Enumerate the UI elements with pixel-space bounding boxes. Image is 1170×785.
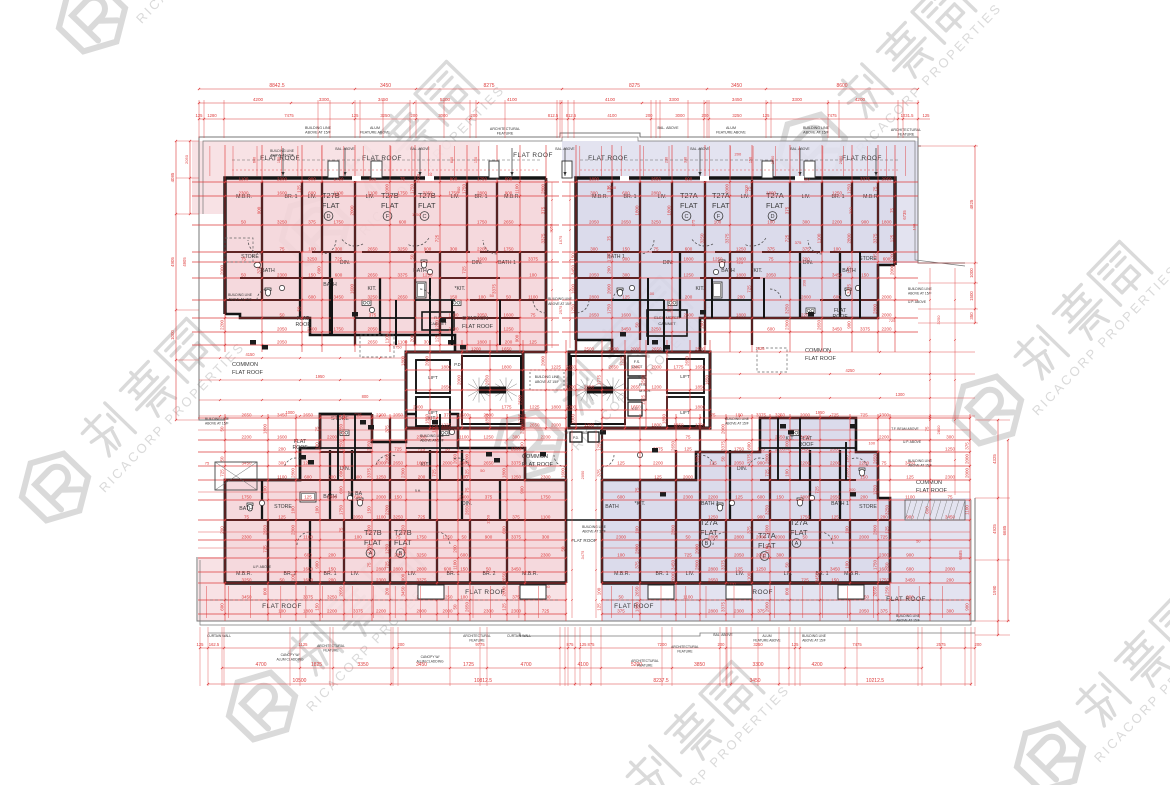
svg-text:F.S.: F.S. — [634, 360, 641, 364]
svg-text:2300: 2300 — [291, 524, 296, 535]
svg-text:125: 125 — [763, 113, 771, 118]
svg-text:900: 900 — [485, 534, 493, 539]
svg-text:75: 75 — [367, 562, 372, 568]
svg-text:375: 375 — [802, 246, 810, 251]
svg-text:ALUM: ALUM — [370, 126, 380, 130]
svg-text:5300: 5300 — [440, 97, 451, 102]
svg-text:3300: 3300 — [792, 97, 803, 102]
svg-text:1250: 1250 — [503, 326, 514, 331]
svg-text:2000: 2000 — [607, 283, 612, 294]
svg-text:C: C — [422, 214, 426, 220]
svg-text:LIV.: LIV. — [802, 194, 811, 200]
svg-text:725: 725 — [418, 514, 426, 519]
svg-text:BUILDING LINE: BUILDING LINE — [270, 149, 295, 153]
svg-text:50: 50 — [279, 577, 285, 582]
svg-text:600: 600 — [339, 486, 344, 494]
svg-text:300: 300 — [622, 272, 630, 277]
svg-text:1750: 1750 — [879, 577, 890, 582]
svg-text:1750: 1750 — [734, 446, 745, 451]
svg-text:1750: 1750 — [339, 504, 344, 515]
svg-text:BUILDING LINE: BUILDING LINE — [908, 459, 933, 463]
svg-text:100: 100 — [478, 294, 486, 299]
svg-text:875: 875 — [588, 642, 596, 647]
svg-text:1850: 1850 — [425, 413, 430, 424]
svg-text:BUILDING LINE: BUILDING LINE — [205, 417, 230, 421]
svg-text:1100: 1100 — [817, 233, 822, 243]
svg-text:2000: 2000 — [425, 355, 430, 366]
svg-text:2050: 2050 — [580, 470, 585, 479]
svg-text:2300: 2300 — [511, 608, 522, 613]
svg-text:75: 75 — [881, 460, 887, 465]
svg-text:600: 600 — [444, 566, 452, 571]
svg-text:50: 50 — [241, 219, 247, 224]
svg-text:FEATURE ABOVE: FEATURE ABOVE — [753, 638, 781, 642]
svg-text:4325: 4325 — [992, 454, 997, 464]
svg-text:1800: 1800 — [551, 404, 562, 409]
svg-text:3375: 3375 — [721, 559, 726, 570]
svg-text:300: 300 — [590, 246, 598, 251]
svg-text:2650: 2650 — [621, 219, 632, 224]
svg-text:1250: 1250 — [339, 440, 344, 451]
svg-text:600: 600 — [263, 587, 268, 595]
svg-text:100: 100 — [460, 594, 468, 599]
svg-text:2000: 2000 — [890, 264, 895, 275]
svg-text:2500: 2500 — [584, 346, 595, 351]
svg-text:8275: 8275 — [629, 83, 640, 89]
svg-text:BUILDING LINE: BUILDING LINE — [548, 297, 573, 301]
svg-text:600: 600 — [767, 326, 775, 331]
svg-text:1800: 1800 — [651, 422, 662, 427]
svg-text:75: 75 — [947, 494, 953, 499]
svg-text:1600: 1600 — [350, 283, 355, 294]
svg-text:2000: 2000 — [743, 184, 748, 194]
svg-text:125: 125 — [873, 253, 878, 261]
svg-text:2200: 2200 — [708, 494, 719, 499]
svg-text:725: 725 — [385, 561, 390, 569]
svg-text:3250: 3250 — [277, 219, 288, 224]
svg-text:ROOF: ROOF — [293, 445, 308, 451]
svg-text:3375: 3375 — [511, 534, 522, 539]
svg-text:2000: 2000 — [945, 566, 956, 571]
svg-text:KIT.: KIT. — [696, 286, 705, 292]
svg-text:3250: 3250 — [367, 294, 378, 299]
svg-text:2200: 2200 — [376, 608, 387, 613]
svg-text:2300: 2300 — [683, 494, 694, 499]
svg-text:75: 75 — [241, 256, 247, 261]
svg-text:1600: 1600 — [303, 566, 314, 571]
svg-text:2800: 2800 — [477, 190, 488, 195]
svg-text:2050: 2050 — [589, 219, 600, 224]
svg-text:125: 125 — [684, 446, 692, 451]
svg-text:3350: 3350 — [357, 662, 368, 668]
svg-text:2650: 2650 — [465, 504, 470, 515]
svg-text:2000: 2000 — [695, 543, 700, 554]
svg-text:2650: 2650 — [651, 176, 662, 181]
svg-text:200: 200 — [607, 266, 612, 274]
svg-text:5.H.: 5.H. — [415, 489, 421, 493]
svg-text:1100: 1100 — [334, 190, 344, 195]
svg-text:2650: 2650 — [529, 422, 540, 427]
svg-text:1000: 1000 — [285, 410, 295, 415]
svg-text:2300: 2300 — [277, 176, 288, 181]
svg-text:725: 725 — [394, 446, 402, 451]
svg-text:600: 600 — [785, 587, 790, 595]
svg-text:600: 600 — [450, 157, 454, 163]
svg-text:330: 330 — [684, 157, 688, 163]
svg-text:3000: 3000 — [438, 113, 448, 118]
svg-text:1250: 1250 — [422, 272, 433, 277]
svg-text:2000: 2000 — [965, 453, 970, 464]
svg-text:BUILDING LINE: BUILDING LINE — [896, 614, 921, 618]
svg-text:4905: 4905 — [182, 257, 187, 267]
svg-text:2050: 2050 — [771, 156, 775, 164]
svg-text:1800: 1800 — [635, 205, 640, 216]
svg-text:375: 375 — [369, 312, 377, 317]
svg-text:1750: 1750 — [462, 183, 467, 194]
svg-text:4700: 4700 — [255, 662, 266, 668]
svg-text:2300: 2300 — [277, 272, 288, 277]
svg-text:ALUM: ALUM — [726, 126, 736, 130]
svg-text:8275: 8275 — [483, 83, 494, 89]
svg-text:P.D.: P.D. — [454, 362, 462, 367]
svg-text:725: 725 — [335, 256, 343, 261]
svg-text:725: 725 — [736, 260, 743, 265]
svg-text:2800: 2800 — [801, 294, 812, 299]
svg-text:LIFT: LIFT — [680, 374, 690, 379]
svg-text:*KIT.: *KIT. — [455, 286, 466, 292]
svg-text:2050: 2050 — [367, 326, 378, 331]
svg-text:1031.5: 1031.5 — [901, 113, 914, 118]
svg-text:ABOVE AT 15/F: ABOVE AT 15/F — [548, 302, 572, 306]
svg-text:3375: 3375 — [541, 233, 546, 244]
svg-text:375: 375 — [795, 240, 802, 245]
svg-text:1600: 1600 — [277, 434, 288, 439]
svg-text:300: 300 — [542, 534, 550, 539]
svg-text:3250: 3250 — [307, 256, 318, 261]
svg-text:150: 150 — [432, 425, 437, 433]
svg-text:900: 900 — [622, 256, 630, 261]
svg-text:ABOVE AT 15/F: ABOVE AT 15/F — [228, 297, 252, 301]
svg-text:50: 50 — [885, 562, 890, 568]
svg-text:2000: 2000 — [584, 384, 595, 389]
svg-text:725: 725 — [860, 412, 868, 417]
svg-text:1850: 1850 — [485, 413, 490, 424]
svg-text:BATH: BATH — [721, 268, 735, 274]
svg-text:2800: 2800 — [873, 524, 878, 535]
svg-text:BAL. ABOVE: BAL. ABOVE — [713, 633, 733, 637]
svg-text:200: 200 — [860, 494, 868, 499]
svg-text:725: 725 — [785, 234, 790, 242]
svg-text:600: 600 — [317, 266, 322, 274]
svg-text:1990: 1990 — [992, 585, 997, 595]
svg-text:1100: 1100 — [747, 572, 752, 582]
svg-text:125: 125 — [465, 469, 470, 477]
svg-text:2800: 2800 — [800, 494, 811, 499]
svg-text:KIT.: KIT. — [368, 286, 377, 292]
svg-text:125: 125 — [735, 494, 743, 499]
svg-text:375: 375 — [485, 494, 493, 499]
svg-text:75: 75 — [635, 487, 640, 493]
svg-text:2500: 2500 — [641, 374, 646, 385]
svg-text:125: 125 — [502, 603, 507, 611]
svg-text:BATH: BATH — [261, 268, 275, 274]
svg-text:2000: 2000 — [725, 183, 730, 194]
svg-text:1750: 1750 — [410, 183, 415, 194]
svg-text:300: 300 — [946, 608, 954, 613]
svg-text:1625: 1625 — [755, 346, 765, 351]
svg-text:3250: 3250 — [885, 504, 890, 515]
svg-text:100: 100 — [315, 442, 320, 450]
svg-text:75: 75 — [315, 426, 320, 432]
svg-text:STORE: STORE — [331, 416, 349, 422]
svg-text:375: 375 — [747, 526, 752, 534]
svg-text:125: 125 — [792, 642, 800, 647]
svg-text:1800: 1800 — [502, 467, 507, 478]
svg-text:2650: 2650 — [651, 346, 662, 351]
svg-text:2050: 2050 — [184, 154, 189, 164]
svg-text:ELEC METER: ELEC METER — [654, 315, 680, 320]
svg-text:2800: 2800 — [327, 494, 338, 499]
svg-text:T.F. BEAM ABOVE: T.F. BEAM ABOVE — [891, 427, 919, 431]
svg-text:600: 600 — [220, 603, 225, 611]
svg-text:1000: 1000 — [969, 268, 974, 278]
svg-text:600: 600 — [399, 219, 407, 224]
svg-text:1600: 1600 — [303, 577, 314, 582]
svg-text:1750: 1750 — [397, 190, 408, 195]
svg-text:2000: 2000 — [541, 355, 546, 366]
svg-text:FLAT: FLAT — [712, 201, 730, 210]
svg-text:125: 125 — [580, 642, 588, 647]
svg-text:3250: 3250 — [241, 577, 252, 582]
svg-text:2650: 2650 — [635, 586, 640, 597]
svg-text:200: 200 — [328, 577, 336, 582]
svg-text:BATH: BATH — [239, 506, 253, 512]
svg-text:2575: 2575 — [558, 306, 563, 315]
svg-text:200: 200 — [453, 545, 458, 553]
svg-text:3375: 3375 — [721, 440, 726, 451]
svg-text:3450: 3450 — [832, 326, 843, 331]
svg-text:100: 100 — [833, 246, 841, 251]
svg-text:1200: 1200 — [630, 364, 641, 369]
svg-text:1800: 1800 — [401, 355, 406, 366]
svg-text:375: 375 — [541, 206, 546, 214]
svg-text:150: 150 — [860, 474, 868, 479]
svg-text:600: 600 — [520, 442, 525, 450]
svg-text:2000: 2000 — [442, 608, 453, 613]
svg-text:A: A — [795, 541, 799, 547]
svg-text:2300: 2300 — [401, 467, 406, 478]
svg-text:900: 900 — [906, 552, 914, 557]
svg-text:100: 100 — [263, 486, 268, 494]
svg-text:600: 600 — [354, 494, 362, 499]
svg-text:50: 50 — [461, 534, 467, 539]
svg-text:200: 200 — [278, 446, 286, 451]
svg-text:300: 300 — [590, 190, 598, 195]
svg-text:4200: 4200 — [253, 97, 264, 102]
svg-text:1850: 1850 — [662, 413, 667, 424]
svg-text:1800: 1800 — [736, 312, 747, 317]
svg-text:8600: 8600 — [836, 83, 847, 89]
svg-text:1750: 1750 — [477, 219, 488, 224]
svg-text:50: 50 — [241, 272, 247, 277]
svg-text:100: 100 — [767, 219, 775, 224]
svg-text:3375: 3375 — [353, 608, 364, 613]
svg-text:1750: 1750 — [416, 534, 427, 539]
svg-text:*KIT.: *KIT. — [752, 268, 763, 274]
svg-text:2000: 2000 — [651, 364, 662, 369]
svg-text:2650: 2650 — [303, 412, 314, 417]
svg-text:4100: 4100 — [577, 662, 588, 668]
svg-text:2800: 2800 — [448, 326, 459, 331]
svg-text:375: 375 — [767, 246, 775, 251]
svg-text:375: 375 — [385, 425, 390, 433]
svg-text:COMMON: COMMON — [232, 362, 258, 368]
svg-text:100: 100 — [785, 469, 790, 477]
svg-text:2650: 2650 — [241, 412, 252, 417]
svg-text:600: 600 — [304, 474, 312, 479]
svg-text:2650: 2650 — [485, 374, 490, 385]
svg-text:125: 125 — [278, 514, 286, 519]
svg-text:2650: 2650 — [503, 219, 514, 224]
svg-text:1600: 1600 — [571, 283, 576, 294]
svg-text:375: 375 — [308, 219, 316, 224]
svg-text:150: 150 — [315, 603, 320, 611]
svg-text:1600: 1600 — [765, 524, 770, 535]
svg-text:1750: 1750 — [607, 251, 612, 262]
svg-text:BAL. ABOVE: BAL. ABOVE — [658, 126, 680, 130]
svg-text:CABINET: CABINET — [658, 321, 676, 326]
svg-text:50: 50 — [489, 293, 494, 298]
svg-text:125: 125 — [196, 113, 204, 118]
svg-text:50: 50 — [785, 562, 790, 568]
svg-text:ABOVE AT 15/F: ABOVE AT 15/F — [802, 638, 826, 642]
svg-text:1225: 1225 — [641, 394, 646, 405]
svg-text:900: 900 — [505, 190, 513, 195]
svg-text:200: 200 — [418, 474, 426, 479]
svg-text:812.5: 812.5 — [566, 113, 577, 118]
svg-text:2200: 2200 — [376, 412, 387, 417]
svg-text:1750: 1750 — [333, 219, 344, 224]
svg-text:FLAT ROOF: FLAT ROOF — [513, 152, 553, 159]
svg-text:1280: 1280 — [207, 113, 217, 118]
svg-text:2650: 2650 — [775, 434, 786, 439]
svg-text:125: 125 — [906, 474, 914, 479]
svg-text:3450: 3450 — [241, 460, 252, 465]
svg-text:1100: 1100 — [239, 176, 249, 181]
svg-text:3000: 3000 — [675, 113, 685, 118]
svg-text:125: 125 — [622, 294, 630, 299]
svg-text:STORE: STORE — [859, 504, 877, 510]
svg-text:2200: 2200 — [220, 319, 225, 330]
svg-text:2050: 2050 — [766, 272, 777, 277]
svg-text:100: 100 — [291, 573, 296, 581]
svg-text:100: 100 — [911, 223, 916, 230]
svg-text:600: 600 — [685, 176, 693, 181]
svg-text:162.5: 162.5 — [209, 642, 220, 647]
svg-text:2650: 2650 — [367, 272, 378, 277]
svg-text:ALUM: ALUM — [762, 634, 771, 638]
svg-text:200: 200 — [385, 587, 390, 595]
svg-text:2650: 2650 — [397, 294, 408, 299]
svg-text:150: 150 — [831, 577, 839, 582]
svg-text:3250: 3250 — [380, 113, 390, 118]
svg-text:1100: 1100 — [277, 474, 287, 479]
svg-text:1225: 1225 — [441, 422, 452, 427]
svg-text:200: 200 — [220, 526, 225, 534]
svg-text:2300: 2300 — [483, 608, 494, 613]
svg-text:125: 125 — [597, 603, 602, 611]
svg-text:7475: 7475 — [852, 642, 862, 647]
svg-text:2000: 2000 — [881, 294, 892, 299]
svg-text:725: 725 — [263, 545, 268, 553]
svg-text:2800: 2800 — [635, 543, 640, 554]
svg-text:100: 100 — [308, 246, 316, 251]
svg-text:3250: 3250 — [700, 233, 705, 244]
svg-text:2000: 2000 — [442, 460, 453, 465]
svg-text:2650: 2650 — [367, 339, 378, 344]
svg-text:CANOPY W/: CANOPY W/ — [421, 655, 440, 659]
svg-text:2800: 2800 — [291, 467, 296, 478]
svg-text:3450: 3450 — [571, 264, 576, 275]
svg-text:1750: 1750 — [477, 176, 488, 181]
svg-text:FLAT: FLAT — [766, 201, 784, 210]
svg-text:600: 600 — [685, 246, 693, 251]
svg-text:1800: 1800 — [881, 219, 892, 224]
svg-text:4200: 4200 — [855, 97, 866, 102]
svg-text:200: 200 — [685, 294, 693, 299]
svg-text:CURTAIN WALL: CURTAIN WALL — [507, 634, 531, 638]
svg-text:375: 375 — [444, 412, 452, 417]
svg-text:200: 200 — [802, 279, 807, 286]
svg-text:1075: 1075 — [558, 236, 563, 245]
svg-text:2800: 2800 — [393, 566, 404, 571]
svg-text:1250: 1250 — [683, 272, 694, 277]
svg-text:1750: 1750 — [873, 559, 878, 570]
svg-text:75: 75 — [400, 176, 406, 181]
svg-text:2000: 2000 — [800, 412, 811, 417]
svg-text:3375: 3375 — [303, 594, 314, 599]
svg-text:1200: 1200 — [471, 346, 482, 351]
svg-text:FLAT ROOF: FLAT ROOF — [916, 488, 947, 494]
svg-text:1600: 1600 — [503, 312, 514, 317]
svg-text:2650: 2650 — [441, 384, 452, 389]
svg-text:600: 600 — [335, 272, 343, 277]
svg-text:725: 725 — [801, 577, 809, 582]
svg-text:2650: 2650 — [393, 460, 404, 465]
svg-text:2050: 2050 — [353, 514, 364, 519]
svg-text:1225: 1225 — [529, 404, 540, 409]
svg-text:BAL. ABOVE: BAL. ABOVE — [410, 147, 430, 151]
svg-text:7475: 7475 — [827, 113, 837, 118]
svg-text:75: 75 — [205, 461, 210, 466]
svg-text:2200: 2200 — [477, 246, 488, 251]
svg-text:1600: 1600 — [448, 312, 459, 317]
svg-text:75: 75 — [339, 527, 344, 533]
svg-text:B: B — [705, 541, 709, 547]
svg-text:900: 900 — [315, 561, 320, 569]
svg-text:3250: 3250 — [393, 514, 404, 519]
svg-text:2800: 2800 — [651, 190, 662, 195]
svg-text:7475: 7475 — [284, 113, 294, 118]
svg-text:725: 725 — [765, 469, 770, 477]
svg-text:600: 600 — [833, 294, 841, 299]
svg-text:1225: 1225 — [518, 413, 523, 424]
svg-text:75: 75 — [873, 186, 878, 192]
svg-text:2000: 2000 — [671, 572, 676, 583]
svg-text:2300: 2300 — [785, 319, 790, 330]
svg-text:3300: 3300 — [669, 97, 680, 102]
svg-text:150: 150 — [450, 294, 458, 299]
